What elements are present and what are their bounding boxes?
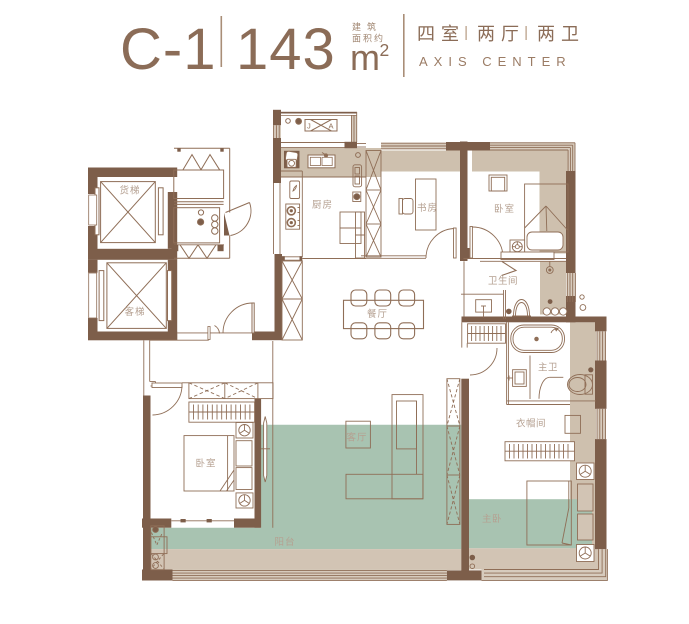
svg-text:客厅: 客厅 bbox=[346, 432, 367, 444]
svg-text:主卫: 主卫 bbox=[538, 362, 558, 374]
svg-text:2: 2 bbox=[380, 40, 390, 60]
svg-text:室: 室 bbox=[441, 24, 459, 44]
svg-text:C-1: C-1 bbox=[120, 17, 216, 82]
svg-text:书房: 书房 bbox=[417, 202, 438, 214]
svg-text:餐厅: 餐厅 bbox=[367, 308, 388, 320]
svg-text:厨房: 厨房 bbox=[312, 199, 333, 211]
svg-text:两: 两 bbox=[477, 24, 495, 44]
svg-text:阳台: 阳台 bbox=[274, 536, 295, 548]
svg-text:143: 143 bbox=[236, 17, 336, 82]
svg-text:客梯: 客梯 bbox=[124, 306, 145, 318]
svg-text:四: 四 bbox=[417, 24, 435, 44]
svg-text:卧室: 卧室 bbox=[195, 458, 216, 470]
svg-text:m: m bbox=[350, 37, 380, 78]
svg-text:厅: 厅 bbox=[501, 24, 519, 44]
svg-text:两: 两 bbox=[537, 24, 555, 44]
svg-text:卫生间: 卫生间 bbox=[488, 275, 518, 287]
svg-text:卫: 卫 bbox=[561, 24, 579, 44]
svg-text:AXIS CENTER: AXIS CENTER bbox=[419, 54, 572, 69]
svg-text:衣帽间: 衣帽间 bbox=[516, 418, 546, 430]
svg-text:卧室: 卧室 bbox=[494, 203, 515, 215]
svg-text:主卧: 主卧 bbox=[482, 513, 502, 525]
svg-text:货梯: 货梯 bbox=[119, 185, 140, 197]
svg-text:A: A bbox=[329, 122, 334, 131]
svg-text:建筑: 建筑 bbox=[352, 21, 382, 32]
svg-text:J: J bbox=[307, 122, 311, 131]
